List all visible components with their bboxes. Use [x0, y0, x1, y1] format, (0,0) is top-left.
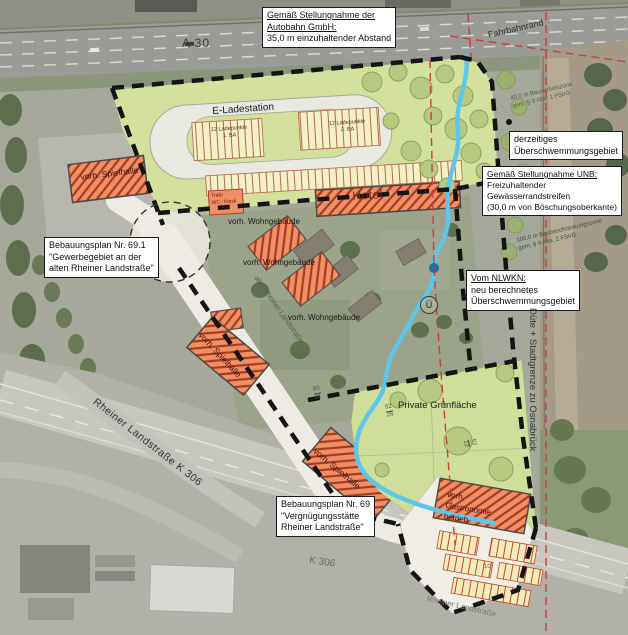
duete-stadtgrenze-label: Düte + Stadtgrenze zu Osnabrück — [527, 308, 538, 451]
parcel-80-21-bottom: 21 — [314, 392, 322, 401]
bplan69-line3: Rheiner Landstraße" — [281, 522, 370, 534]
boundary-point — [506, 119, 512, 125]
annotation-box-autobahn: Gemäß Stellungnahme der Autobahn GmbH: 3… — [262, 7, 396, 48]
unb-line2: Freizuhaltender — [487, 180, 617, 191]
annotation-box-flood-current: derzeitiges Überschwemmungsgebiet — [509, 131, 623, 160]
flood-line1: derzeitiges — [514, 134, 618, 146]
nlwkn-line3: Überschwemmungsgebiet — [471, 296, 575, 308]
bplan69-line1: Bebauungsplan Nr. 69 — [281, 499, 370, 511]
parcel-52-26-bottom: 26 — [386, 410, 394, 419]
wohngebaeude-label-3: vorh. Wohngebäude — [288, 313, 360, 323]
autobahn-line3: 35,0 m einzuhaltender Abstand — [267, 33, 391, 45]
bplan691-line2: "Gewerbegebiet an der — [49, 252, 154, 264]
parcel-80-21-top: 80 — [313, 385, 321, 393]
annotation-box-bplan-69: Bebauungsplan Nr. 69 "Vergnügungsstätte … — [276, 496, 375, 537]
bplan691-line1: Bebauungsplan Nr. 69.1 — [49, 240, 154, 252]
bplan69-line2: "Vergnügungsstätte — [281, 511, 370, 523]
parcel-52-26-top: 52 — [385, 403, 393, 411]
flood-line2: Überschwemmungsgebiet — [514, 146, 618, 158]
parcel-10-label: 10 — [484, 564, 491, 571]
annotation-box-unb: Gemäß Stellungnahme UNB: Freizuhaltender… — [482, 166, 622, 216]
trafo-label: Trafo WC / Kiosk — [211, 191, 237, 206]
nlwkn-line2: neu berechnetes — [471, 285, 575, 297]
gastronomie-label: vorh. Gastronomie betrieb — [443, 490, 493, 529]
autobahn-line1: Gemäß Stellungnahme der — [267, 10, 391, 22]
wohngebaeude-label-1: vorh. Wohngebäude — [228, 217, 300, 227]
highway-label-a30: A 30 — [182, 36, 210, 50]
autobahn-line2: Autobahn GmbH: — [267, 22, 391, 34]
unb-line3: Gewässerrandstreifen — [487, 191, 617, 202]
ue-flood-symbol: Ü — [420, 296, 438, 314]
private-gruenflaeche-label: Private Grünfläche — [398, 400, 477, 411]
nlwkn-line1: Vom NLWKN: — [471, 273, 575, 285]
parcel-52-12-top: 52 — [469, 439, 477, 447]
unb-line1: Gemäß Stellungnahme UNB: — [487, 169, 617, 180]
wohngebaeude-label-2: vorh. Wohngebäude — [243, 258, 315, 268]
bplan691-line3: alten Rheiner Landstraße" — [49, 263, 154, 275]
ue-symbol-text: Ü — [426, 300, 433, 310]
annotation-box-bplan-691: Bebauungsplan Nr. 69.1 "Gewerbegebiet an… — [44, 237, 159, 278]
hotel-label: Hotel — [352, 187, 383, 203]
annotation-box-nlwkn: Vom NLWKN: neu berechnetes Überschwemmun… — [466, 270, 580, 311]
site-plan: A 30 Fahrbahnrand 40,0 m Bauverbotszone … — [0, 0, 628, 635]
unb-line4: (30,0 m von Böschungsoberkante) — [487, 202, 617, 213]
